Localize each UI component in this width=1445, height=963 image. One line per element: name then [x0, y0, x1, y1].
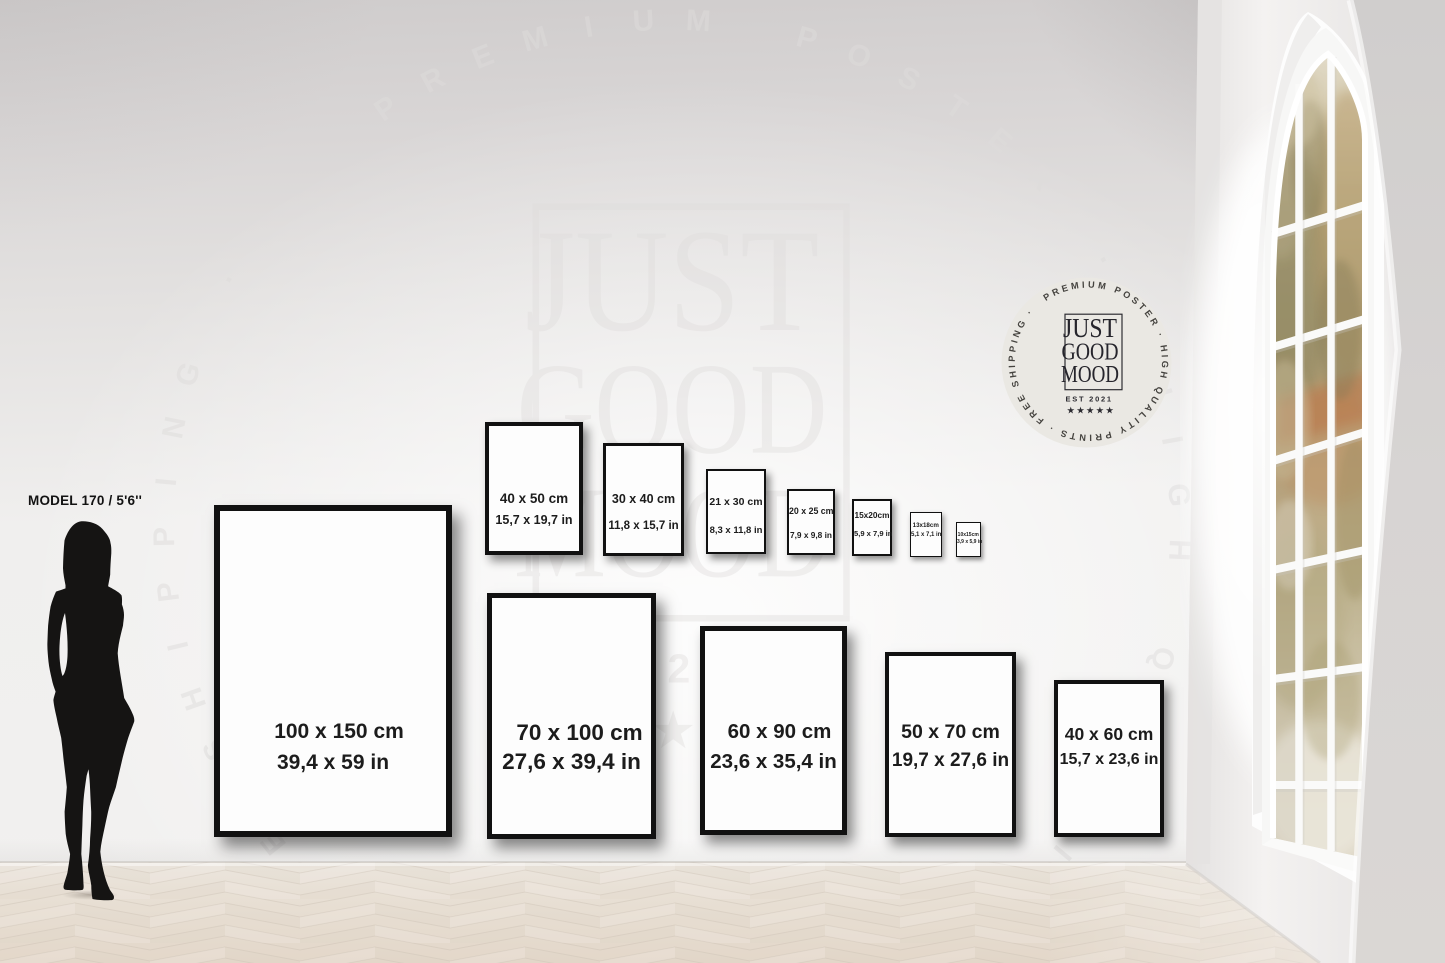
svg-text:P: P [151, 580, 186, 604]
svg-text:I: I [161, 638, 195, 654]
svg-text:H: H [175, 683, 213, 715]
svg-text:N: N [156, 414, 193, 442]
svg-text:·: · [213, 267, 247, 292]
svg-text:I: I [150, 476, 184, 487]
svg-text:P: P [793, 20, 821, 57]
svg-text:E: E [982, 122, 1019, 160]
svg-text:M: M [685, 4, 712, 38]
svg-text:P: P [368, 89, 403, 128]
svg-text:M: M [519, 20, 552, 59]
svg-text:E: E [468, 38, 499, 76]
svg-text:I: I [582, 10, 596, 44]
svg-text:P: P [148, 527, 181, 548]
svg-text:T: T [939, 89, 973, 127]
svg-text:R: R [1021, 159, 1060, 198]
svg-text:U: U [632, 4, 655, 38]
svg-text:G: G [169, 358, 208, 390]
svg-text:S: S [892, 60, 925, 99]
svg-text:O: O [842, 37, 876, 76]
svg-text:R: R [416, 60, 451, 99]
